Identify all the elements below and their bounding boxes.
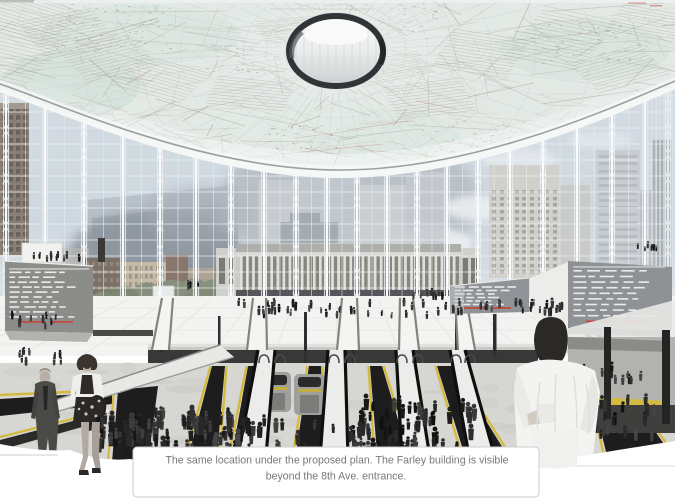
svg-text:The same location under the pr: The same location under the proposed pla… [165,455,508,467]
svg-text:beyond the 8th Ave. entrance.: beyond the 8th Ave. entrance. [266,471,407,483]
